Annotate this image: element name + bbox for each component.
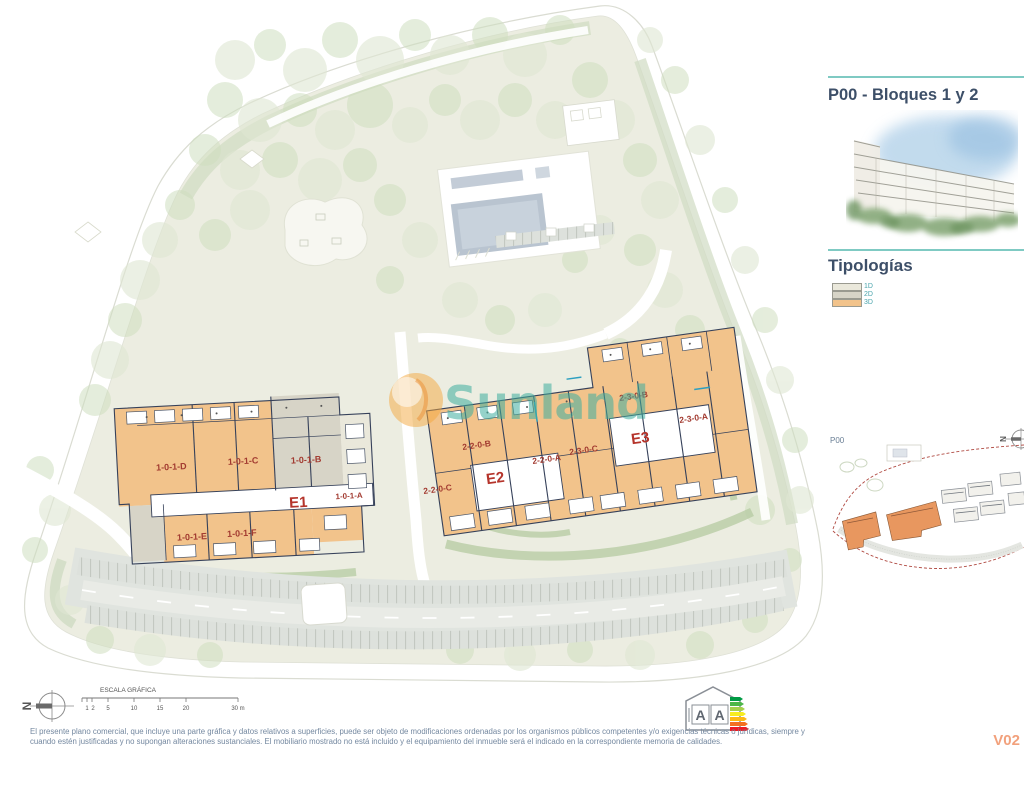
- building-render-image: [846, 110, 1018, 246]
- scale-tick: 2: [91, 706, 95, 712]
- typologies-heading: Tipologías: [828, 256, 913, 276]
- keyplan-highlighted-blocks: [842, 501, 942, 550]
- legend-swatch-3d: [832, 299, 862, 307]
- unit-label-1-0-1-F: 1-0-1-F: [227, 527, 257, 539]
- key-plan: P00 N: [825, 425, 1024, 577]
- version-label: V02: [993, 732, 1020, 749]
- north-arrow: N: [20, 690, 74, 722]
- legend-row-1d: 1D: [832, 283, 873, 291]
- scale-tick: 20: [183, 706, 190, 712]
- core-label-E2: E2: [485, 469, 506, 488]
- energy-consumption-letter: A: [695, 707, 705, 723]
- plaza: [301, 583, 348, 626]
- scale-tick: 30 m: [231, 706, 244, 712]
- legend-swatch-1d: [832, 283, 862, 291]
- watermark-text: Sunland: [444, 376, 648, 430]
- scale-bar: ESCALA GRÁFICA 1 2 5 10 15 20 30 m: [82, 685, 245, 712]
- typologies-legend: 1D 2D 3D: [832, 283, 873, 307]
- legend-swatch-2d: [832, 291, 862, 299]
- north-letter: N: [20, 702, 34, 711]
- side-panel: P00 - Bloques 1 y 2: [828, 0, 1024, 800]
- disclaimer: El presente plano comercial, que incluye…: [30, 727, 960, 747]
- energy-label-icon: A A: [686, 687, 749, 731]
- scale-bar-title: ESCALA GRÁFICA: [100, 685, 157, 694]
- unit-label-1-0-1-D: 1-0-1-D: [156, 461, 187, 473]
- unit-label-1-0-1-A: 1-0-1-A: [335, 491, 363, 501]
- page-title: P00 - Bloques 1 y 2: [828, 86, 978, 105]
- unit-label-1-0-1-B: 1-0-1-B: [291, 454, 322, 466]
- keyplan-label: P00: [830, 436, 845, 445]
- energy-emissions-letter: A: [714, 707, 724, 723]
- disclaimer-line-2: cuando estén justificadas y no supongan …: [30, 737, 960, 747]
- core-label-E3: E3: [630, 429, 651, 448]
- legend-row-2d: 2D: [832, 291, 873, 299]
- legend-label-2d: 2D: [864, 291, 873, 299]
- scale-tick: 1: [85, 706, 89, 712]
- watermark: Sunland: [389, 373, 648, 430]
- legend-label-3d: 3D: [864, 299, 873, 307]
- scale-tick: 5: [106, 706, 110, 712]
- keyplan-north-letter: N: [999, 436, 1008, 442]
- unit-label-1-0-1-E: 1-0-1-E: [177, 531, 207, 543]
- legend-label-1d: 1D: [864, 283, 873, 291]
- divider-line: [828, 76, 1024, 78]
- scale-tick: 15: [157, 706, 164, 712]
- plan-sheet: 1-0-1-D 1-0-1-C 1-0-1-B 1-0-1-A 1-0-1-E …: [0, 0, 1024, 800]
- disclaimer-line-1: El presente plano comercial, que incluye…: [30, 727, 960, 737]
- core-label-E1: E1: [289, 494, 308, 512]
- legend-row-3d: 3D: [832, 299, 873, 307]
- building-block-1: 1-0-1-D 1-0-1-C 1-0-1-B 1-0-1-A 1-0-1-E …: [114, 391, 377, 564]
- scale-tick: 10: [131, 706, 138, 712]
- unit-label-1-0-1-C: 1-0-1-C: [228, 455, 259, 467]
- divider-line: [828, 249, 1024, 251]
